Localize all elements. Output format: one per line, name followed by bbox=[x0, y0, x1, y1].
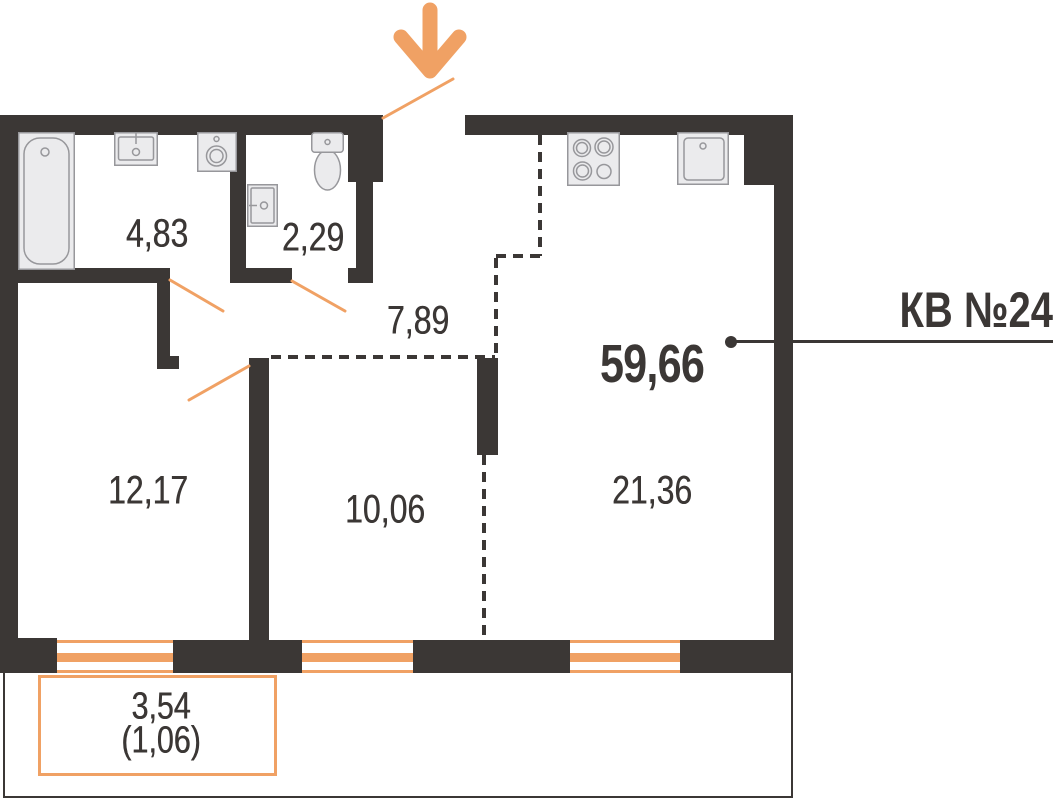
window-frame bbox=[302, 653, 413, 662]
zone-boundary-dashed bbox=[538, 135, 542, 256]
window-frame bbox=[302, 670, 413, 673]
wall-segment bbox=[157, 268, 170, 369]
wall-segment bbox=[0, 638, 57, 673]
window-frame bbox=[570, 670, 680, 673]
wall-segment bbox=[413, 640, 570, 673]
window-frame bbox=[570, 640, 680, 643]
floor-plan: 4,83 2,29 7,89 12,17 10,06 21,36 3,54 (1… bbox=[0, 0, 1053, 801]
room-area-room: 10,06 bbox=[345, 488, 425, 533]
zone-boundary-dashed bbox=[496, 254, 540, 258]
wall-segment bbox=[0, 268, 167, 283]
entrance-arrow-icon bbox=[401, 10, 459, 71]
wall-segment bbox=[230, 268, 292, 283]
window bbox=[302, 640, 413, 673]
wall-segment bbox=[348, 135, 383, 182]
total-area: 59,66 bbox=[600, 333, 704, 395]
room-area-hallway: 7,89 bbox=[387, 299, 449, 344]
kitchen-sink-icon bbox=[677, 132, 729, 185]
bathtub-icon bbox=[18, 132, 75, 270]
wall-segment bbox=[0, 135, 18, 638]
room-area-bedroom: 12,17 bbox=[108, 469, 188, 514]
washing-machine-icon bbox=[197, 132, 237, 172]
wc-sink-icon bbox=[247, 184, 278, 227]
room-area-living-kitchen: 21,36 bbox=[612, 469, 692, 514]
room-area-bathroom: 4,83 bbox=[126, 212, 188, 257]
wall-segment bbox=[680, 640, 793, 673]
wall-segment bbox=[744, 135, 793, 185]
wall-segment bbox=[157, 356, 179, 369]
door-swing-bathroom bbox=[170, 280, 223, 311]
door-swing-entrance bbox=[383, 79, 453, 118]
bathroom-sink-icon bbox=[114, 132, 158, 166]
balcony-area-coefficient: (1,06) bbox=[121, 720, 200, 763]
window-frame bbox=[57, 653, 173, 662]
zone-boundary-dashed bbox=[271, 355, 495, 359]
door-swing-wc bbox=[292, 281, 345, 311]
zone-boundary-dashed bbox=[482, 455, 486, 640]
wall-segment bbox=[348, 268, 373, 283]
door-swing-bedroom bbox=[189, 366, 249, 400]
apartment-number: КВ №24 bbox=[900, 281, 1053, 339]
window-frame bbox=[57, 640, 173, 643]
stove-icon bbox=[567, 132, 620, 186]
window-frame bbox=[570, 653, 680, 662]
wall-segment bbox=[249, 358, 269, 640]
window-frame bbox=[302, 640, 413, 643]
wall-segment bbox=[465, 115, 793, 135]
toilet-icon bbox=[311, 132, 344, 191]
zone-boundary-dashed bbox=[494, 258, 498, 356]
wall-segment bbox=[173, 640, 302, 673]
window bbox=[57, 640, 173, 673]
leader-line bbox=[731, 340, 1053, 343]
room-area-wc: 2,29 bbox=[282, 216, 344, 261]
wall-segment bbox=[477, 358, 498, 455]
window-frame bbox=[57, 670, 173, 673]
window bbox=[570, 640, 680, 673]
wall-segment bbox=[774, 135, 793, 640]
